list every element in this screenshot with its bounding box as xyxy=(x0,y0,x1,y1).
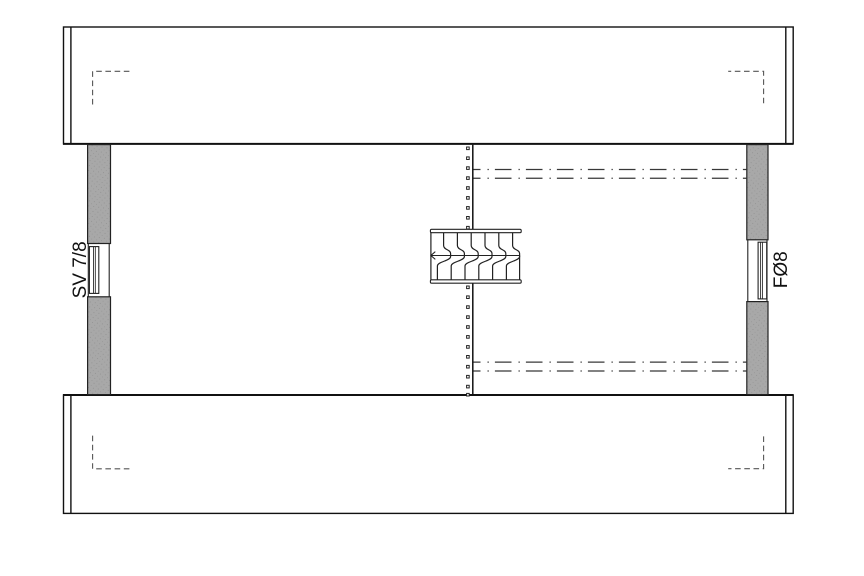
svg-text:SV 7/8: SV 7/8 xyxy=(70,241,91,298)
svg-text:FØ8: FØ8 xyxy=(771,251,792,288)
